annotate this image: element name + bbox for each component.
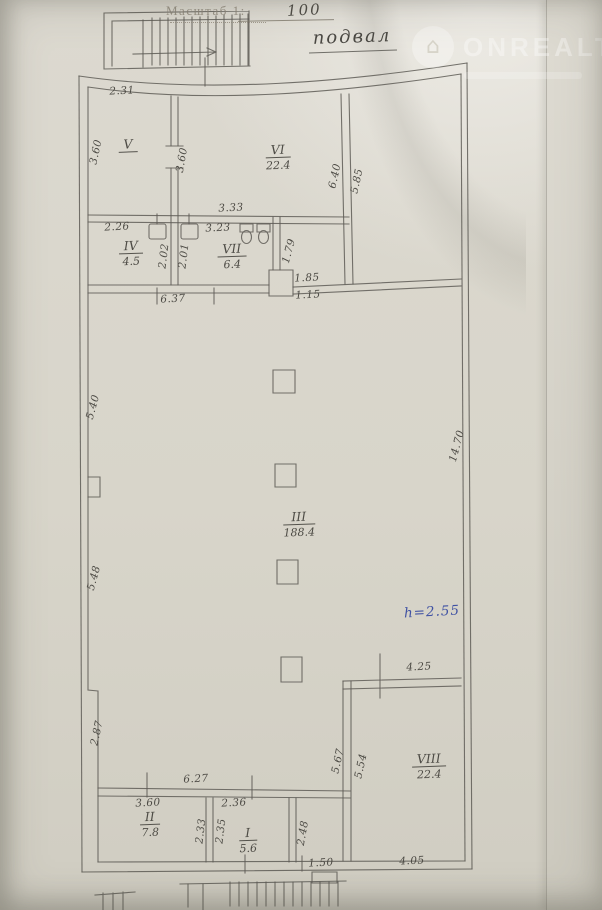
scale-value: 100 [287, 0, 323, 20]
scale-underline-dotted [170, 22, 266, 23]
plan-title: подвал [312, 25, 391, 49]
room-label-i: I 5.6 [239, 825, 258, 856]
dim-strip-bottom: 6.37 [160, 292, 186, 305]
room-label-iii: III 188.4 [283, 508, 316, 539]
ceiling-height-note: h=2.55 [404, 603, 461, 622]
room-label-vii: VII 6.4 [217, 241, 247, 272]
dim-opening-bottom: 1.15 [295, 288, 321, 301]
floor-plan-drawing [0, 0, 602, 910]
dim-opening-top: 1.85 [294, 271, 320, 284]
dim-vi-bottom: 3.33 [218, 201, 244, 214]
room-label-vi: VI 22.4 [265, 142, 291, 173]
dim-bottom-gap: 1.50 [308, 856, 334, 869]
scanned-floor-plan-photo: Масштаб 1: 100 подвал ⌂ ONREALT h=2.55 V… [0, 0, 602, 910]
room-label-iv: IV 4.5 [118, 238, 143, 269]
dim-lower-top: 6.27 [183, 772, 209, 785]
top-staircase [104, 11, 250, 69]
columns [269, 270, 302, 682]
room-label-ii: II 7.8 [140, 809, 161, 840]
upper-room-walls [88, 94, 461, 294]
dim-i-top: 2.36 [221, 796, 247, 809]
bottom-staircase [95, 872, 346, 910]
dim-ii-top: 3.60 [135, 796, 161, 809]
scale-label: Масштаб 1: [166, 3, 246, 19]
room-label-viii: VIII 22.4 [412, 750, 447, 781]
dim-viii-top: 4.25 [406, 660, 432, 673]
room-label-v: V [118, 136, 138, 154]
dim-iv-top: 2.26 [104, 220, 130, 233]
dim-v-top: 2.31 [109, 84, 135, 97]
dim-viii-bottom: 4.05 [399, 854, 425, 867]
dim-vii-top: 3.23 [205, 221, 231, 234]
